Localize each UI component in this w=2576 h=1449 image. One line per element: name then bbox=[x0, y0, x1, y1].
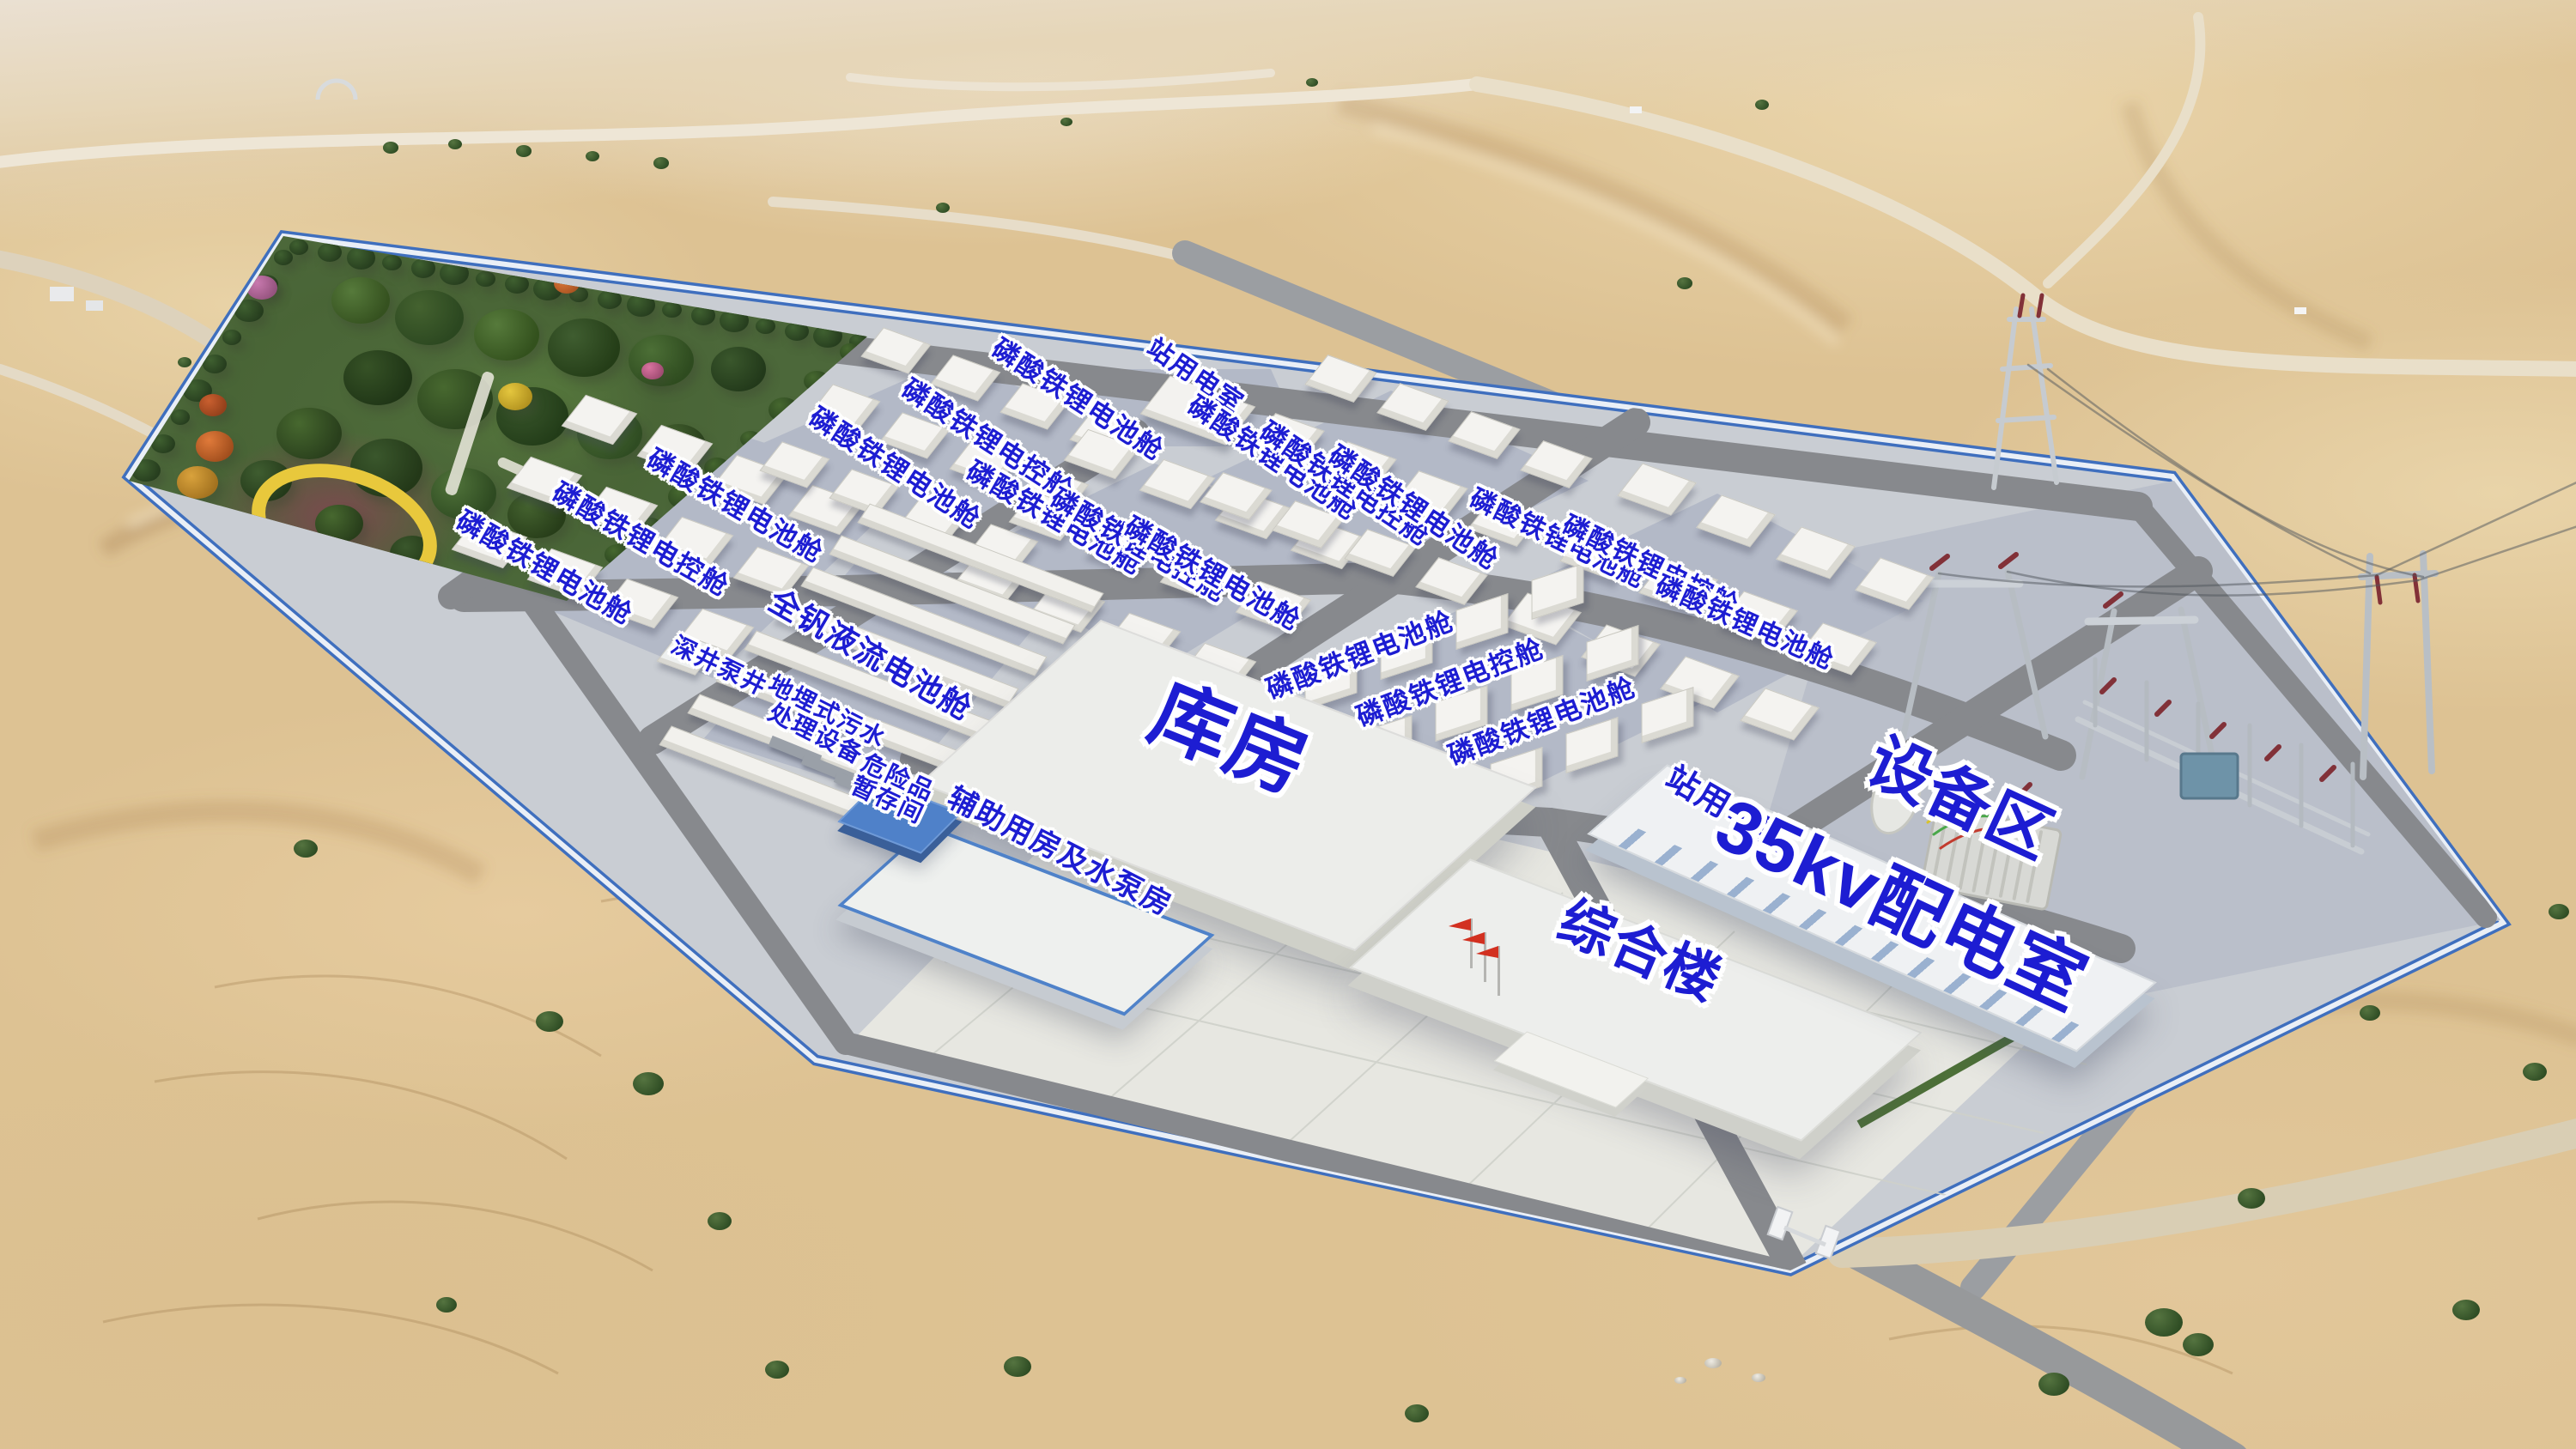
aerial-site-rendering: 站用电室磷酸铁锂电池舱磷酸铁锂电控舱磷酸铁锂电池舱磷酸铁锂电池舱磷酸铁锂电控舱磷… bbox=[0, 0, 2576, 1449]
lfp-battery-cabin-label: 磷酸铁锂电池舱 bbox=[1465, 485, 1649, 593]
equipment-area-label: 设备区 bbox=[1857, 728, 2063, 870]
lfp-control-cabin-label: 磷酸铁锂电控舱 bbox=[548, 478, 733, 601]
vanadium-flow-battery-label: 全钒液流电池舱 bbox=[763, 584, 977, 725]
lfp-battery-cabin-label: 磷酸铁锂电池舱 bbox=[1323, 441, 1504, 575]
comprehensive-building-label: 综合楼 bbox=[1551, 892, 1729, 1011]
lfp-control-cabin-label: 磷酸铁锂电控舱 bbox=[1255, 417, 1435, 551]
lfp-battery-cabin-label: 磷酸铁锂电池舱 bbox=[804, 403, 985, 535]
zone-labels-layer: 站用电室磷酸铁锂电池舱磷酸铁锂电控舱磷酸铁锂电池舱磷酸铁锂电池舱磷酸铁锂电控舱磷… bbox=[0, 0, 2576, 1449]
distribution-room-label: 35kv配电室 bbox=[1704, 786, 2098, 1024]
deep-well-pump-label: 深井泵井 bbox=[668, 633, 772, 700]
lfp-battery-cabin-label: 磷酸铁锂电池舱 bbox=[987, 335, 1168, 466]
lfp-battery-cabin-label: 磷酸铁锂电池舱 bbox=[452, 506, 637, 629]
sewage-treatment-label: 地埋式污水 处理设备 bbox=[753, 671, 890, 774]
lfp-battery-cabin-label: 磷酸铁锂电池舱 bbox=[1120, 512, 1305, 635]
lfp-battery-cabin-label: 磷酸铁锂电池舱 bbox=[1444, 674, 1639, 771]
lfp-battery-cabin-label: 磷酸铁锂电池舱 bbox=[1651, 572, 1838, 675]
lfp-control-cabin-label: 磷酸铁锂电控舱 bbox=[1352, 635, 1547, 732]
lfp-control-cabin-label: 磷酸铁锂电控舱 bbox=[896, 375, 1078, 506]
station-power-room-label: 站用电室 bbox=[1142, 334, 1249, 417]
station-power-room-label: 站用电室 bbox=[1660, 761, 1795, 859]
auxiliary-building-label: 辅助用房及水泵房 bbox=[943, 783, 1177, 922]
lfp-control-cabin-label: 磷酸铁锂电控舱 bbox=[1046, 484, 1231, 607]
lfp-battery-cabin-label: 磷酸铁锂电池舱 bbox=[1182, 391, 1363, 525]
lfp-battery-cabin-label: 磷酸铁锂电池舱 bbox=[642, 445, 828, 567]
lfp-battery-cabin-label: 磷酸铁锂电池舱 bbox=[962, 457, 1147, 579]
warehouse-label: 库房 bbox=[1139, 671, 1320, 808]
lfp-battery-cabin-label: 磷酸铁锂电池舱 bbox=[1262, 608, 1457, 705]
lfp-control-cabin-label: 磷酸铁锂电控舱 bbox=[1558, 512, 1742, 620]
hazmat-storage-label: 危险品 暂存间 bbox=[848, 750, 939, 828]
